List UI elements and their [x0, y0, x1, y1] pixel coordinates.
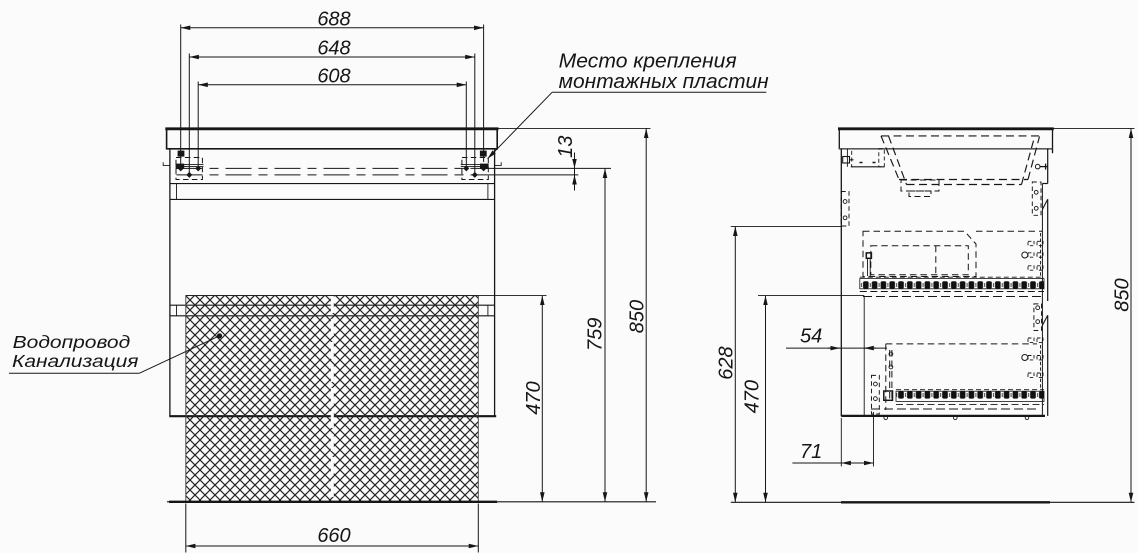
svg-text:Место крепления: Место крепления [559, 51, 737, 73]
svg-text:монтажных пластин: монтажных пластин [559, 71, 769, 93]
svg-text:648: 648 [317, 37, 350, 59]
svg-text:54: 54 [800, 326, 822, 348]
svg-text:660: 660 [317, 525, 350, 547]
svg-text:470: 470 [523, 381, 545, 414]
svg-text:Водопровод: Водопровод [13, 332, 131, 352]
svg-text:470: 470 [741, 380, 763, 413]
svg-text:850: 850 [627, 300, 649, 333]
svg-text:759: 759 [584, 318, 606, 351]
svg-text:13: 13 [555, 136, 577, 158]
svg-text:71: 71 [800, 441, 822, 463]
svg-text:850: 850 [1112, 278, 1134, 311]
svg-text:Канализация: Канализация [12, 351, 139, 371]
svg-text:628: 628 [715, 346, 737, 379]
svg-text:608: 608 [317, 65, 350, 87]
svg-text:688: 688 [317, 8, 350, 30]
